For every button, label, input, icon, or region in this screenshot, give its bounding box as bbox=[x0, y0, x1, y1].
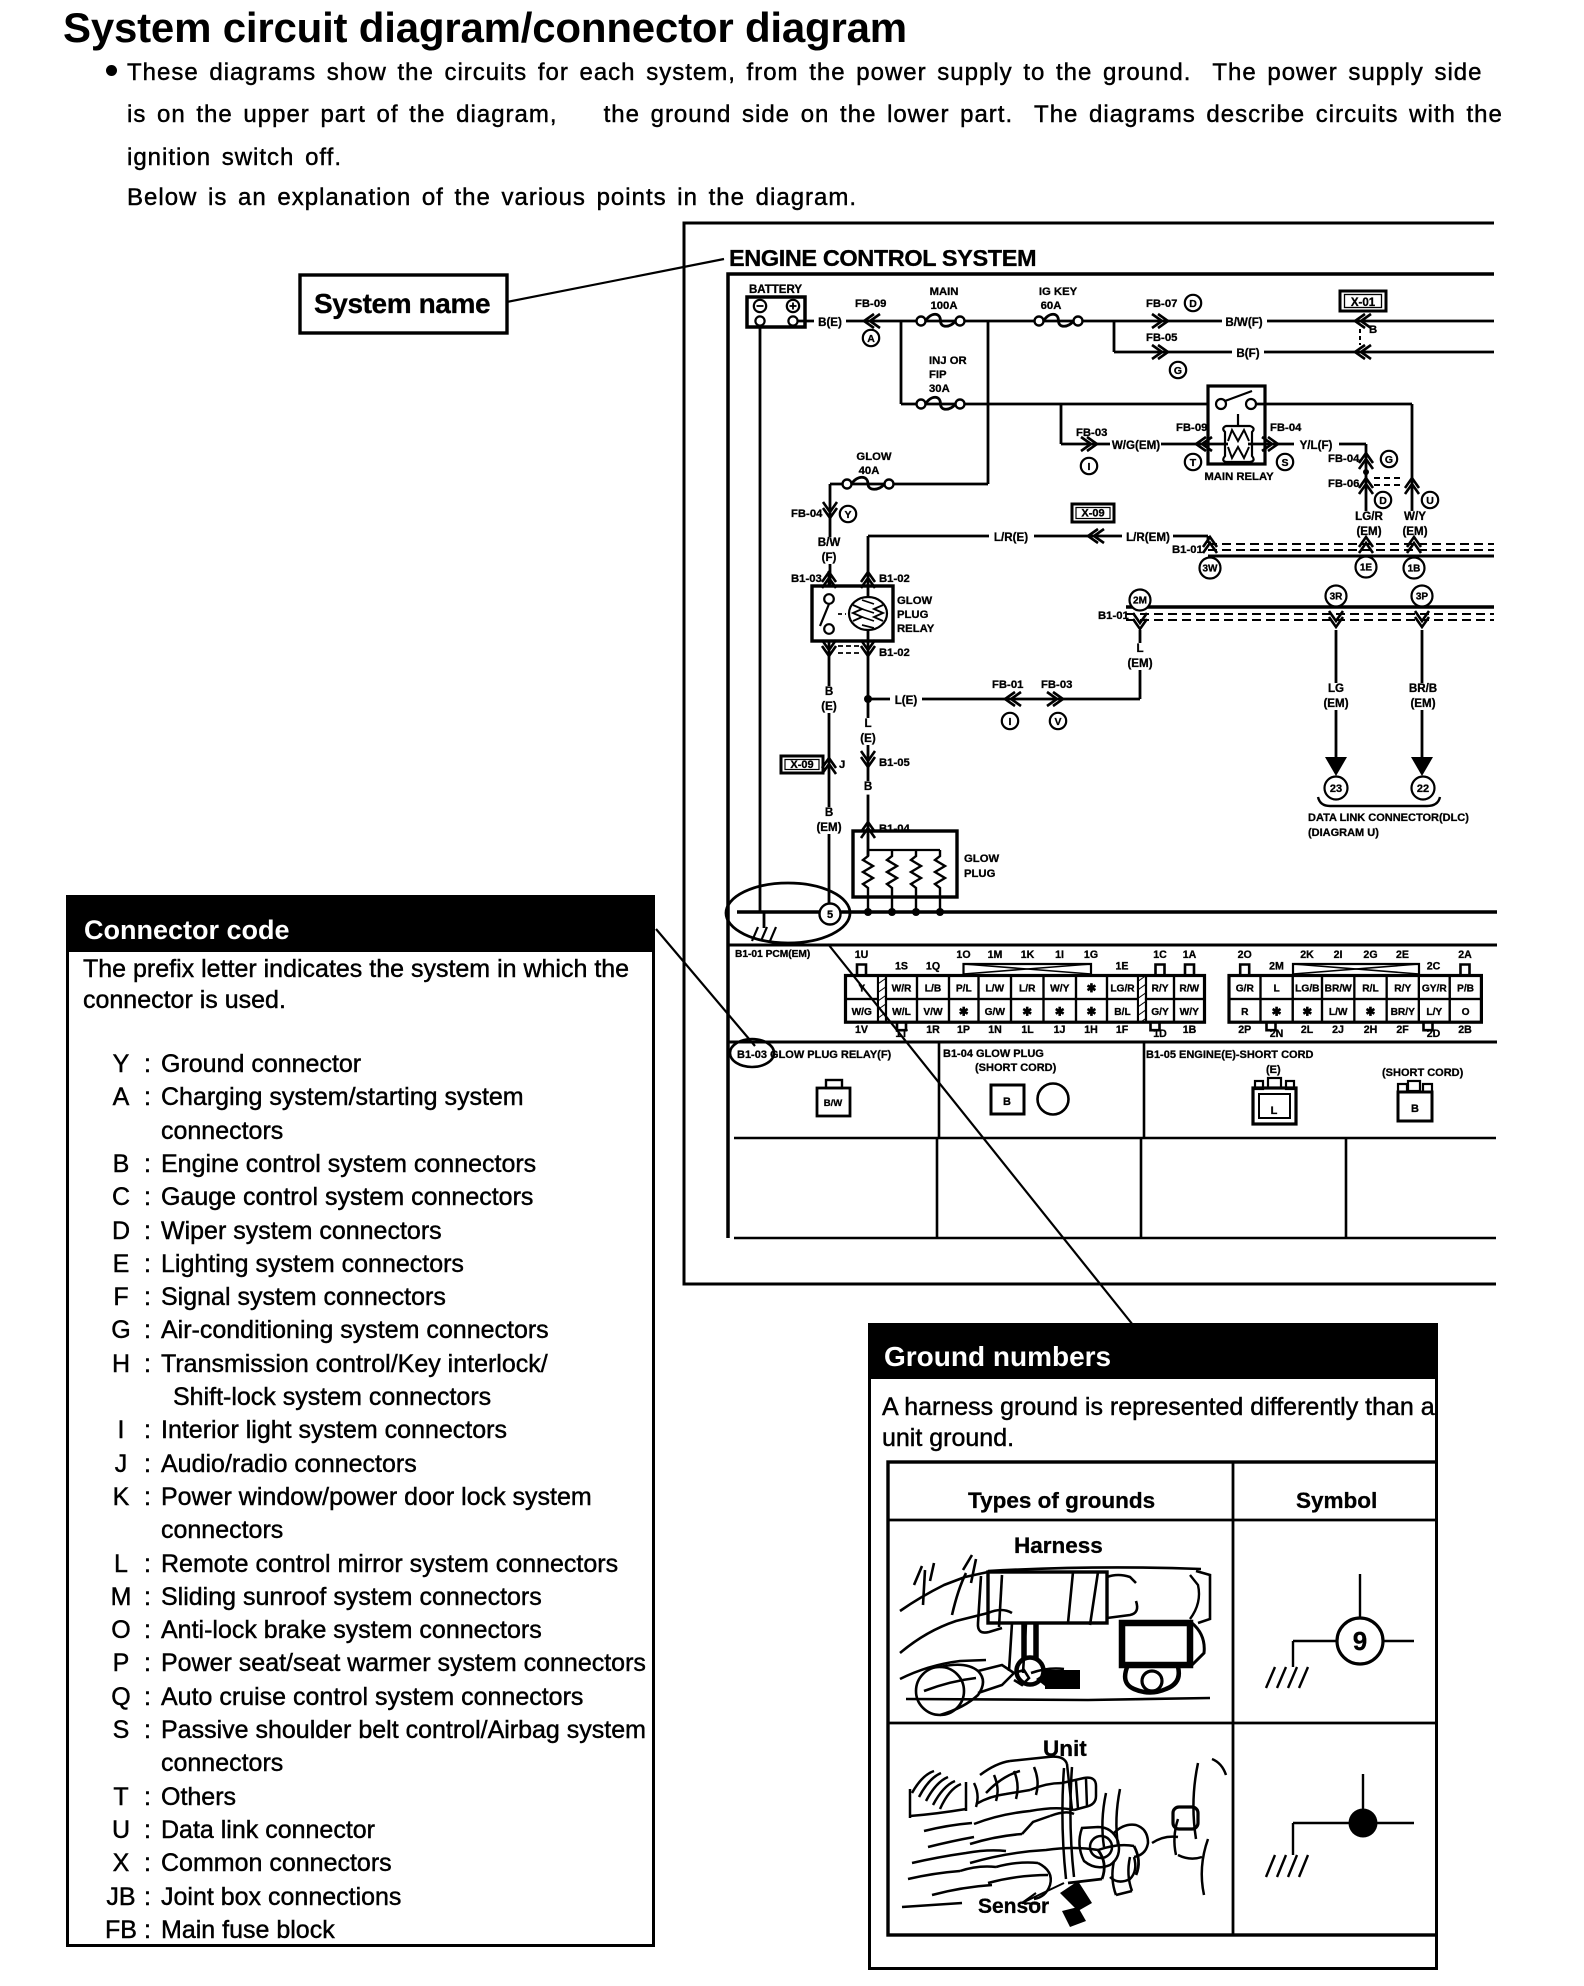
svg-text:IG KEY: IG KEY bbox=[1039, 286, 1078, 298]
svg-text:Types of grounds: Types of grounds bbox=[968, 1488, 1155, 1513]
svg-text:1S: 1S bbox=[895, 961, 908, 973]
svg-text:2C: 2C bbox=[1427, 961, 1441, 973]
svg-text:22: 22 bbox=[1417, 783, 1429, 795]
svg-text:B1-01: B1-01 bbox=[1172, 544, 1203, 556]
svg-text:1K: 1K bbox=[1021, 949, 1035, 961]
svg-text:B(E): B(E) bbox=[818, 316, 842, 329]
svg-text:1F: 1F bbox=[1116, 1024, 1129, 1036]
svg-text:MAIN RELAY: MAIN RELAY bbox=[1204, 471, 1274, 483]
svg-text:1G: 1G bbox=[1084, 949, 1098, 961]
svg-text:1U: 1U bbox=[855, 949, 869, 961]
svg-text:1J: 1J bbox=[1054, 1024, 1066, 1036]
svg-text:B1-04 GLOW PLUG: B1-04 GLOW PLUG bbox=[943, 1048, 1044, 1060]
svg-text:BR/B: BR/B bbox=[1409, 682, 1437, 695]
svg-text:W/Y: W/Y bbox=[1404, 510, 1426, 523]
svg-text:R/L: R/L bbox=[1362, 984, 1378, 995]
svg-text:2A: 2A bbox=[1458, 949, 1472, 961]
svg-text:1C: 1C bbox=[1153, 949, 1167, 961]
svg-text:T: T bbox=[1190, 457, 1197, 469]
svg-text:1R: 1R bbox=[926, 1024, 940, 1036]
svg-text:(EM): (EM) bbox=[1410, 697, 1435, 710]
svg-text:2O: 2O bbox=[1238, 949, 1252, 961]
svg-text:R/Y: R/Y bbox=[1152, 984, 1169, 995]
svg-text:W/G: W/G bbox=[852, 1007, 872, 1018]
svg-text:B1-02: B1-02 bbox=[879, 573, 910, 585]
svg-text:B: B bbox=[1003, 1096, 1011, 1108]
svg-text:L: L bbox=[864, 717, 871, 730]
svg-text:3R: 3R bbox=[1330, 592, 1344, 603]
svg-text:A: A bbox=[867, 333, 875, 345]
svg-text:1A: 1A bbox=[1183, 949, 1197, 961]
svg-text:1E: 1E bbox=[1116, 961, 1129, 973]
svg-text:B: B bbox=[825, 685, 833, 698]
svg-text:B1-01 PCM(EM): B1-01 PCM(EM) bbox=[735, 949, 810, 960]
svg-text:5: 5 bbox=[827, 909, 833, 921]
svg-text:2K: 2K bbox=[1300, 949, 1314, 961]
svg-text:1B: 1B bbox=[1408, 564, 1421, 575]
svg-text:1M: 1M bbox=[988, 949, 1003, 961]
svg-text:3P: 3P bbox=[1416, 592, 1429, 603]
svg-text:ENGINE CONTROL SYSTEM: ENGINE CONTROL SYSTEM bbox=[729, 245, 1036, 271]
svg-text:FB-06: FB-06 bbox=[1328, 478, 1359, 490]
svg-text:PLUG: PLUG bbox=[964, 868, 996, 880]
svg-text:BATTERY: BATTERY bbox=[749, 284, 802, 296]
svg-text:R/W: R/W bbox=[1179, 984, 1199, 995]
svg-text:Y: Y bbox=[844, 509, 851, 521]
svg-text:(EM): (EM) bbox=[1356, 525, 1381, 538]
svg-text:(DIAGRAM U): (DIAGRAM U) bbox=[1308, 827, 1379, 839]
svg-text:W/L: W/L bbox=[892, 1007, 911, 1018]
svg-text:V/W: V/W bbox=[923, 1007, 943, 1018]
svg-text:(EM): (EM) bbox=[1323, 697, 1348, 710]
svg-text:LG/B: LG/B bbox=[1295, 984, 1319, 995]
svg-text:23: 23 bbox=[1330, 783, 1342, 795]
svg-text:G: G bbox=[1385, 454, 1393, 466]
svg-text:G/W: G/W bbox=[985, 1007, 1006, 1018]
svg-text:X-01: X-01 bbox=[1351, 297, 1376, 309]
svg-text:G/R: G/R bbox=[1236, 984, 1255, 995]
svg-text:B1-05: B1-05 bbox=[879, 757, 910, 769]
svg-text:J: J bbox=[839, 759, 845, 771]
svg-text:✱: ✱ bbox=[1087, 1006, 1097, 1019]
svg-text:L/W: L/W bbox=[1329, 1007, 1348, 1018]
svg-text:B(F): B(F) bbox=[1236, 347, 1259, 360]
svg-text:Harness: Harness bbox=[1014, 1533, 1103, 1558]
svg-text:G: G bbox=[1174, 365, 1182, 377]
svg-text:(E): (E) bbox=[1266, 1064, 1281, 1076]
svg-text:2M: 2M bbox=[1133, 596, 1147, 607]
svg-text:B1-04: B1-04 bbox=[879, 823, 910, 835]
svg-text:B1-03: B1-03 bbox=[791, 573, 822, 585]
svg-text:L/R: L/R bbox=[1019, 984, 1036, 995]
svg-text:V: V bbox=[1054, 716, 1061, 728]
svg-text:B/L: B/L bbox=[1114, 1007, 1130, 1018]
svg-text:G/Y: G/Y bbox=[1151, 1007, 1169, 1018]
svg-text:D: D bbox=[1189, 298, 1197, 310]
svg-text:System name: System name bbox=[314, 288, 490, 319]
svg-text:X-09: X-09 bbox=[1081, 508, 1104, 520]
svg-text:D: D bbox=[1379, 495, 1387, 507]
svg-text:1P: 1P bbox=[957, 1024, 970, 1036]
svg-text:1V: 1V bbox=[855, 1024, 868, 1036]
svg-text:(EM): (EM) bbox=[816, 821, 841, 834]
svg-text:✱: ✱ bbox=[959, 1006, 969, 1019]
svg-text:LG/R: LG/R bbox=[1110, 984, 1135, 995]
svg-text:1O: 1O bbox=[956, 949, 970, 961]
svg-text:R: R bbox=[1241, 1007, 1249, 1018]
svg-text:(E): (E) bbox=[821, 700, 837, 713]
svg-text:B1-02: B1-02 bbox=[879, 647, 910, 659]
svg-text:Sensor: Sensor bbox=[978, 1895, 1049, 1918]
svg-text:1L: 1L bbox=[1021, 1024, 1034, 1036]
svg-text:U: U bbox=[1426, 495, 1434, 507]
svg-text:B/W: B/W bbox=[824, 1098, 843, 1109]
svg-text:2E: 2E bbox=[1396, 949, 1409, 961]
svg-text:2M: 2M bbox=[1269, 961, 1284, 973]
svg-text:L: L bbox=[1271, 1105, 1278, 1117]
svg-text:BR/W: BR/W bbox=[1325, 984, 1353, 995]
svg-text:FB-07: FB-07 bbox=[1146, 298, 1177, 310]
svg-text:✱: ✱ bbox=[1055, 1006, 1065, 1019]
svg-text:FB-09: FB-09 bbox=[1176, 422, 1207, 434]
svg-text:W/Y: W/Y bbox=[1050, 984, 1069, 995]
svg-text:B/W(F): B/W(F) bbox=[1225, 316, 1262, 329]
svg-text:L/B: L/B bbox=[925, 984, 941, 995]
svg-text:FB-01: FB-01 bbox=[992, 679, 1023, 691]
svg-text:2L: 2L bbox=[1301, 1024, 1314, 1036]
svg-text:60A: 60A bbox=[1041, 300, 1062, 312]
svg-text:GLOW: GLOW bbox=[856, 451, 891, 463]
svg-text:L/R(E): L/R(E) bbox=[994, 531, 1028, 544]
svg-text:2I: 2I bbox=[1334, 949, 1343, 961]
svg-text:FB-03: FB-03 bbox=[1076, 427, 1107, 439]
svg-text:FB-03: FB-03 bbox=[1041, 679, 1072, 691]
svg-text:FB-09: FB-09 bbox=[855, 298, 886, 310]
svg-text:(SHORT CORD): (SHORT CORD) bbox=[975, 1062, 1057, 1074]
svg-text:GY/R: GY/R bbox=[1422, 984, 1448, 995]
svg-text:FB-04: FB-04 bbox=[1270, 422, 1302, 434]
svg-text:W/R: W/R bbox=[892, 984, 912, 995]
svg-text:Symbol: Symbol bbox=[1296, 1488, 1377, 1513]
svg-text:✱: ✱ bbox=[1366, 1006, 1376, 1019]
svg-text:3W: 3W bbox=[1203, 564, 1219, 575]
svg-text:FB-04: FB-04 bbox=[791, 508, 823, 520]
svg-text:2G: 2G bbox=[1363, 949, 1377, 961]
svg-text:B/W: B/W bbox=[818, 536, 841, 549]
svg-text:✱: ✱ bbox=[1302, 1006, 1312, 1019]
svg-text:B: B bbox=[1369, 324, 1377, 336]
svg-text:2J: 2J bbox=[1332, 1024, 1344, 1036]
svg-text:S: S bbox=[1281, 457, 1288, 469]
svg-text:RELAY: RELAY bbox=[897, 623, 935, 635]
svg-text:B: B bbox=[825, 806, 833, 819]
svg-text:1H: 1H bbox=[1084, 1024, 1098, 1036]
svg-text:✱: ✱ bbox=[1272, 1006, 1282, 1019]
svg-text:100A: 100A bbox=[930, 300, 957, 312]
svg-text:L: L bbox=[1136, 642, 1143, 655]
svg-text:X-09: X-09 bbox=[790, 759, 813, 771]
svg-text:B1-03 GLOW PLUG RELAY(F): B1-03 GLOW PLUG RELAY(F) bbox=[737, 1049, 892, 1061]
svg-text:L/R(EM): L/R(EM) bbox=[1126, 531, 1170, 544]
svg-text:FB-04: FB-04 bbox=[1328, 453, 1360, 465]
svg-text:LG/R: LG/R bbox=[1355, 510, 1383, 523]
svg-text:1I: 1I bbox=[1055, 949, 1064, 961]
svg-text:1E: 1E bbox=[1360, 563, 1373, 574]
svg-text:(SHORT CORD): (SHORT CORD) bbox=[1382, 1067, 1464, 1079]
svg-text:DATA LINK CONNECTOR(DLC): DATA LINK CONNECTOR(DLC) bbox=[1308, 812, 1469, 824]
svg-text:W/Y: W/Y bbox=[1180, 1007, 1199, 1018]
svg-text:✱: ✱ bbox=[1022, 1006, 1032, 1019]
svg-text:P/L: P/L bbox=[956, 984, 972, 995]
svg-text:L/Y: L/Y bbox=[1426, 1007, 1442, 1018]
svg-text:INJ OR: INJ OR bbox=[929, 355, 967, 367]
svg-text:L/W: L/W bbox=[985, 984, 1004, 995]
svg-text:Y/L(F): Y/L(F) bbox=[1300, 439, 1333, 452]
svg-text:PLUG: PLUG bbox=[897, 609, 929, 621]
svg-text:✱: ✱ bbox=[1087, 982, 1097, 995]
svg-text:2H: 2H bbox=[1364, 1024, 1378, 1036]
svg-text:B: B bbox=[864, 780, 872, 793]
svg-text:(E): (E) bbox=[860, 732, 876, 745]
svg-text:2B: 2B bbox=[1458, 1024, 1472, 1036]
svg-text:R/Y: R/Y bbox=[1394, 984, 1411, 995]
svg-text:BR/Y: BR/Y bbox=[1391, 1007, 1416, 1018]
svg-text:MAIN: MAIN bbox=[930, 286, 959, 298]
svg-text:2F: 2F bbox=[1396, 1024, 1409, 1036]
svg-text:O: O bbox=[1462, 1007, 1470, 1018]
svg-text:1Q: 1Q bbox=[926, 961, 940, 973]
svg-text:GLOW: GLOW bbox=[964, 853, 999, 865]
svg-text:FB-05: FB-05 bbox=[1146, 332, 1177, 344]
svg-text:(EM): (EM) bbox=[1402, 525, 1427, 538]
svg-text:L: L bbox=[1273, 984, 1279, 995]
svg-text:(F): (F) bbox=[822, 551, 837, 564]
svg-text:I: I bbox=[1009, 716, 1012, 728]
svg-text:I: I bbox=[1088, 461, 1091, 473]
svg-text:1N: 1N bbox=[988, 1024, 1002, 1036]
svg-text:B1-05 ENGINE(E)-SHORT CORD: B1-05 ENGINE(E)-SHORT CORD bbox=[1146, 1049, 1314, 1061]
svg-text:B1-01: B1-01 bbox=[1098, 610, 1129, 622]
svg-text:30A: 30A bbox=[929, 383, 950, 395]
svg-text:(EM): (EM) bbox=[1127, 657, 1152, 670]
svg-text:B: B bbox=[1411, 1103, 1419, 1115]
svg-text:LG: LG bbox=[1328, 682, 1344, 695]
svg-text:1B: 1B bbox=[1183, 1024, 1197, 1036]
svg-text:P/B: P/B bbox=[1457, 984, 1474, 995]
svg-text:GLOW: GLOW bbox=[897, 595, 932, 607]
svg-text:2P: 2P bbox=[1238, 1024, 1251, 1036]
svg-text:L(E): L(E) bbox=[895, 694, 918, 707]
svg-text:W/G(EM): W/G(EM) bbox=[1112, 439, 1160, 452]
svg-text:9: 9 bbox=[1353, 1626, 1367, 1656]
svg-text:FIP: FIP bbox=[929, 369, 947, 381]
svg-text:40A: 40A bbox=[859, 465, 880, 477]
